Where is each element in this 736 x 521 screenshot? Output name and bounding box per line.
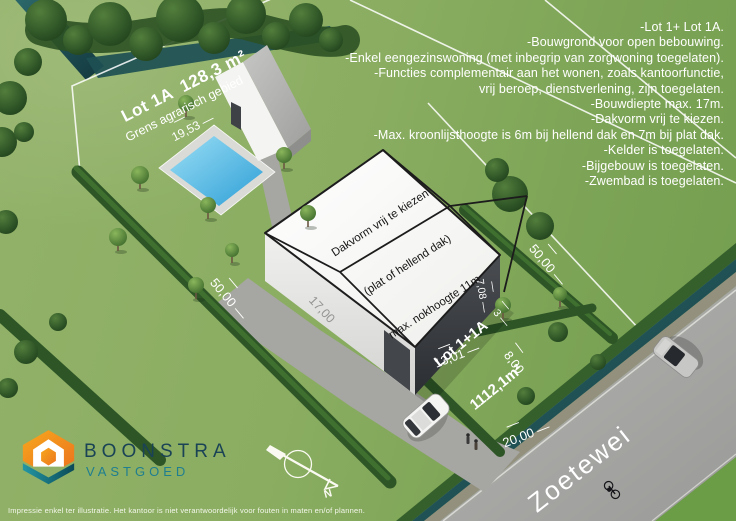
disclaimer-text: Impressie enkel ter illustratie. Het kan… xyxy=(8,506,365,515)
regulations-note-block: -Lot 1+ Lot 1A. -Bouwgrond voor open beb… xyxy=(164,20,724,189)
compass-north-arrow: N xyxy=(266,445,338,501)
logo-company-name: BOONSTRA xyxy=(84,441,231,463)
compass-north-label: N xyxy=(323,487,334,501)
logo-tagline: VASTGOED xyxy=(86,464,189,479)
note-line: -Kelder is toegelaten. xyxy=(164,143,724,158)
note-line: -Functies complementair aan het wonen, z… xyxy=(164,66,724,81)
note-line: -Bouwgrond voor open bebouwing. xyxy=(164,35,724,50)
note-line: -Lot 1+ Lot 1A. xyxy=(164,20,724,35)
note-line: -Zwembad is toegelaten. xyxy=(164,174,724,189)
note-line: -Dakvorm vrij te kiezen. xyxy=(164,112,724,127)
site-plan-scene: N -Lot 1+ Lot 1A. -Bouwgrond voor open b… xyxy=(0,0,736,521)
logo-icon xyxy=(23,430,74,484)
note-line: -Max. kroonlijsthoogte is 6m bij hellend… xyxy=(164,128,724,143)
note-line: -Bijgebouw is toegelaten. xyxy=(164,159,724,174)
note-line: vrij beroep, dienstverlening, zijn toege… xyxy=(164,82,724,97)
note-line: -Bouwdiepte max. 17m. xyxy=(164,97,724,112)
